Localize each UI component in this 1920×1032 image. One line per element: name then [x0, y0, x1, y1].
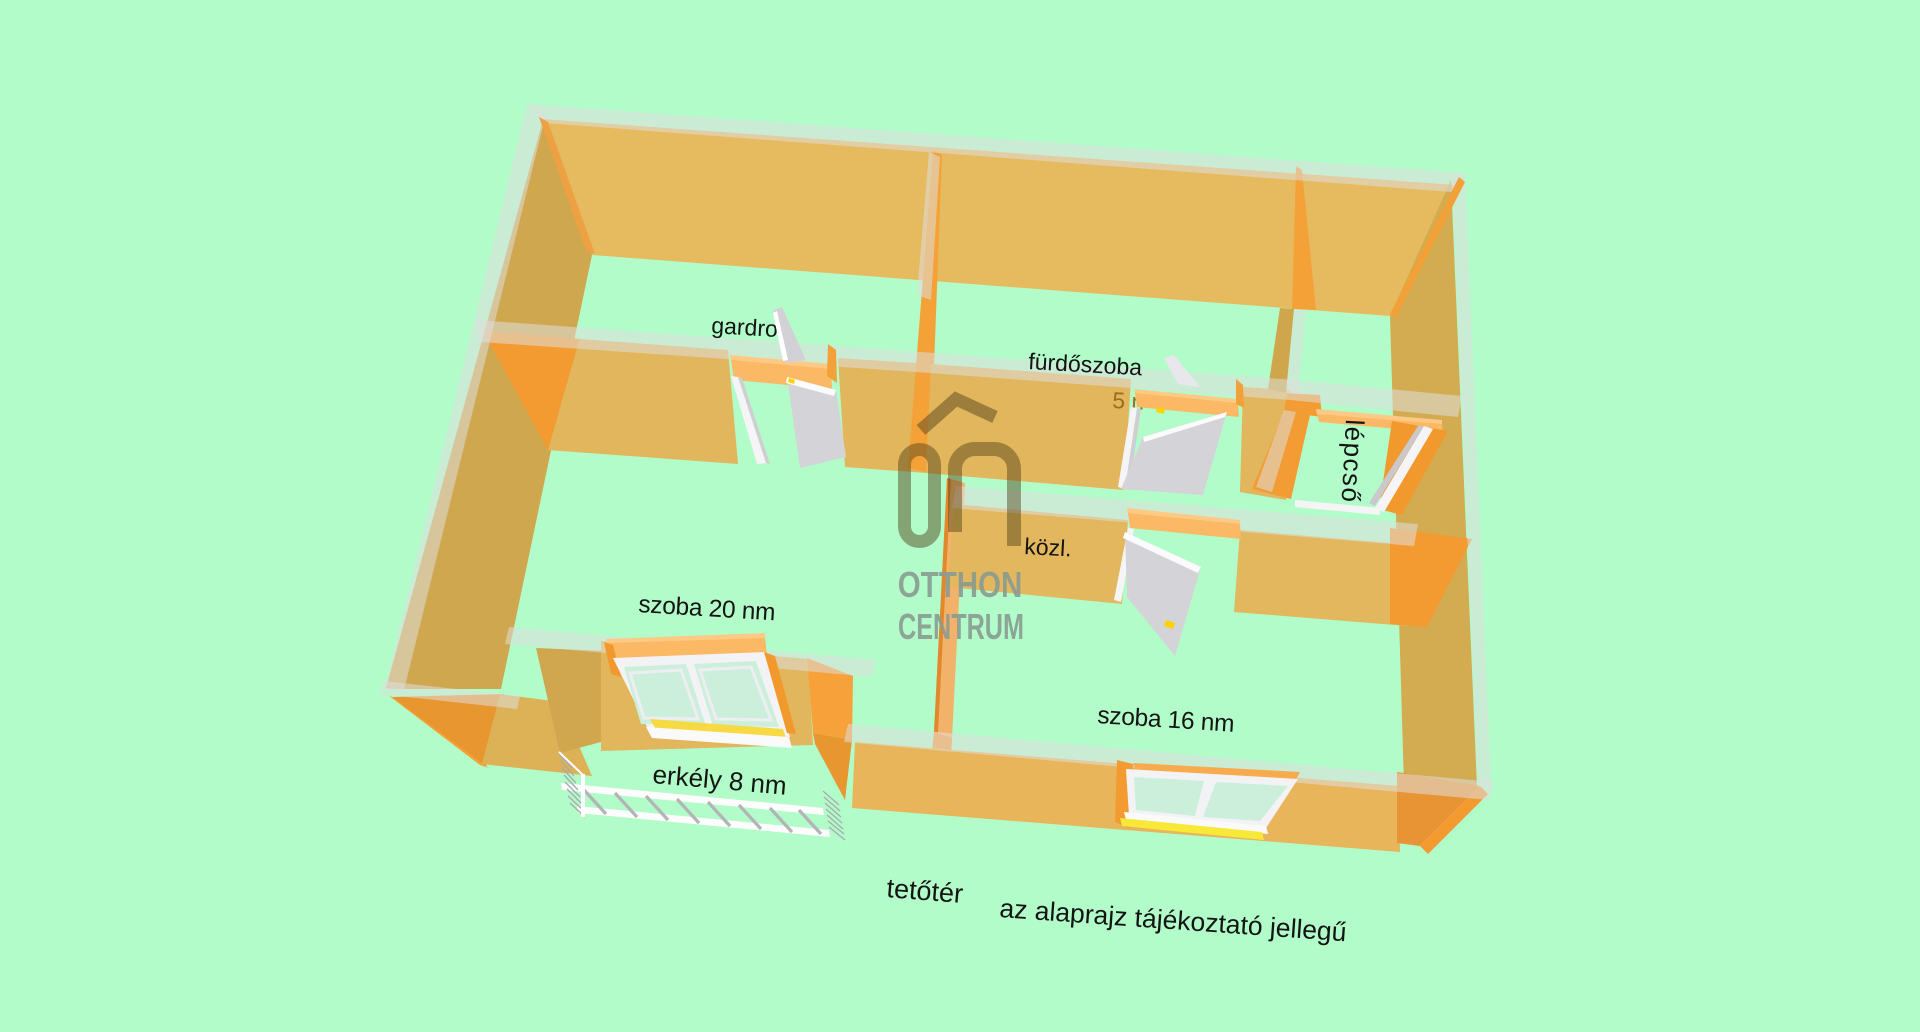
svg-text:tetőtér: tetőtér [886, 873, 965, 909]
svg-text:OTTHON: OTTHON [898, 564, 1023, 604]
svg-text:közl.: közl. [1024, 533, 1073, 561]
svg-text:lépcső: lépcső [1336, 419, 1370, 505]
svg-text:CENTRUM: CENTRUM [898, 607, 1024, 648]
